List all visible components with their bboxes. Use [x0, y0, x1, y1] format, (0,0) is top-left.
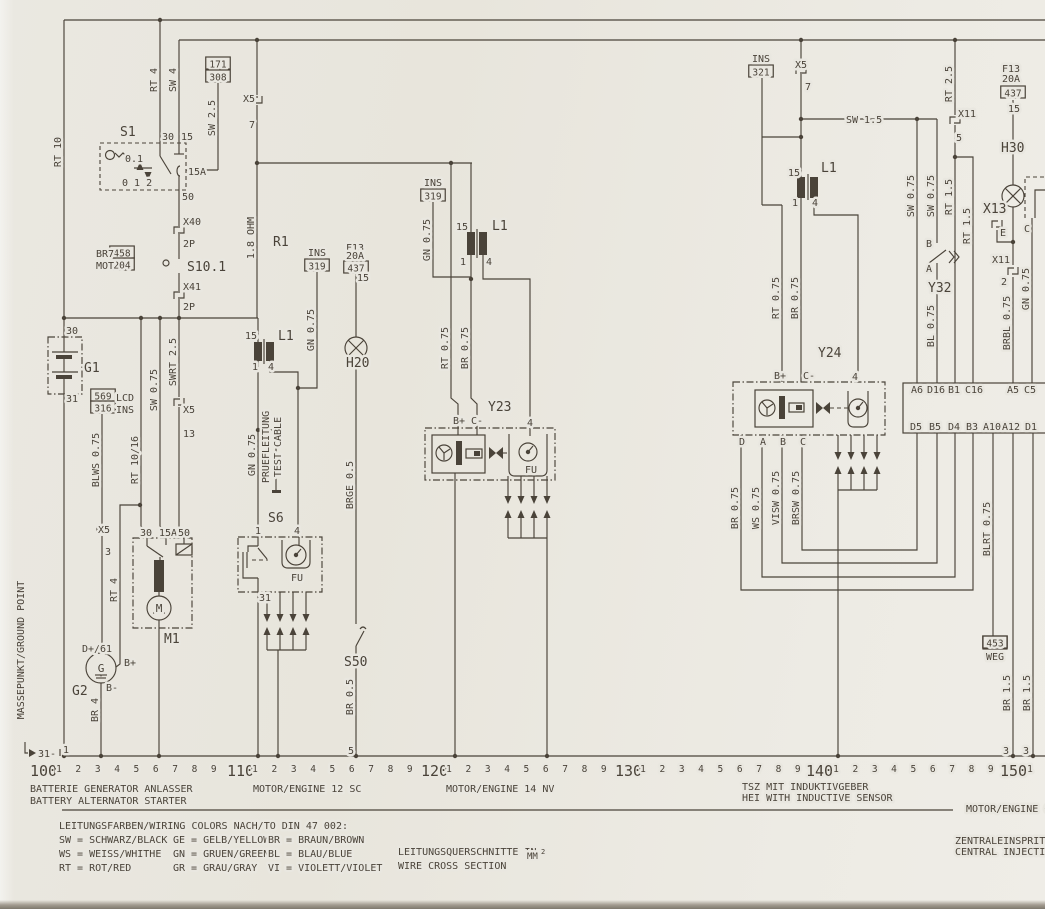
spark-arrow — [290, 614, 297, 622]
solid-bar — [56, 375, 72, 379]
rail-tick-number: 9 — [601, 764, 607, 775]
wire — [147, 546, 163, 557]
wire — [762, 402, 767, 408]
diagram-label: B+ — [453, 416, 465, 427]
rail-tick-number: 3 — [95, 764, 101, 775]
rail-tick-number: 9 — [211, 764, 217, 775]
diagram-label: 61 — [100, 644, 112, 655]
diagram-label: 4 — [486, 257, 492, 268]
diagram-label: 4 — [812, 198, 818, 209]
wire-label: WS 0.75 — [751, 487, 762, 529]
wire-label: SW 2.5 — [207, 100, 218, 136]
diagram-label: MOTOR/ENGINE 14 NV — [446, 784, 554, 795]
spark-arrow — [531, 496, 538, 504]
diagram-label: A6 — [911, 385, 923, 396]
diagram-label: C16 — [965, 385, 983, 396]
rail-tick-number: 5 — [718, 764, 724, 775]
rail-tick-number: 3 — [291, 764, 297, 775]
junction-dot — [953, 155, 957, 159]
rail-tick-number: 2 — [466, 764, 472, 775]
diagram-label: BR = BRAUN/BROWN — [268, 835, 364, 846]
wire-label: GN 0.75 — [247, 434, 258, 476]
diagram-label: 15A — [159, 528, 177, 539]
wire-label: SW 4 — [168, 68, 179, 92]
diagram-label: D16 — [927, 385, 945, 396]
wire-label: BR 0.75 — [460, 327, 471, 369]
diagram-label: MM — [527, 852, 538, 862]
diagram-label: D+/ — [82, 644, 100, 655]
diagram-label: X11 — [992, 255, 1010, 266]
diagram-label: GR = GRAU/GRAY — [173, 863, 257, 874]
wire-label: BLRT 0.75 — [982, 502, 993, 556]
rail-tick-number: 4 — [891, 764, 897, 775]
spark-arrow — [277, 614, 284, 622]
wire-label: RT 1.5 — [944, 179, 955, 215]
diagram-label: 15 — [1008, 104, 1020, 115]
diagram-label: 3 — [1003, 746, 1009, 757]
wire-label: BR 0.75 — [730, 487, 741, 529]
wire-label: BR 4 — [90, 698, 101, 722]
wire-label: BR 0.5 — [345, 679, 356, 715]
wire-label: RT 2.5 — [944, 66, 955, 102]
wire-label: RT 0.75 — [440, 327, 451, 369]
solid-bar — [474, 451, 480, 456]
diagram-label: LCD — [116, 393, 134, 404]
diagram-label: 4 — [294, 526, 300, 537]
diagram-label: X41 — [183, 282, 201, 293]
rail-tick-number: 2 — [660, 764, 666, 775]
junction-dot — [139, 316, 143, 320]
schematic-page: 171308458204569316319437319321437453RT 1… — [0, 0, 1045, 909]
diagram-label: 1 — [252, 362, 258, 373]
diagram-label: B+ — [124, 658, 136, 669]
spark-arrow — [861, 452, 868, 460]
spark-arrow — [874, 452, 881, 460]
diagram-label: 20A — [346, 251, 364, 262]
rail-tick-number: 9 — [407, 764, 413, 775]
junction-dot — [256, 754, 260, 758]
rail-tick-number: 6 — [349, 764, 355, 775]
wire — [439, 447, 444, 453]
diagram-label: 15A — [188, 167, 206, 178]
diagram-label: X5 — [98, 525, 110, 536]
wire-label: RT 10 — [53, 137, 64, 167]
rail-tick-number: 4 — [698, 764, 704, 775]
rail-tick-number: 1 — [833, 764, 839, 775]
spark-arrow — [835, 466, 842, 474]
wire — [955, 157, 973, 383]
diagram-label: CENTRAL INJECTIO — [955, 847, 1045, 858]
wire — [471, 279, 477, 428]
diagram-label: R1 — [273, 235, 289, 250]
diagram-label: 1 — [460, 257, 466, 268]
wire-label: SW 0.75 — [926, 175, 937, 217]
spark-arrow — [290, 627, 297, 635]
wire-label: BR 1.5 — [1002, 675, 1013, 711]
solid-bar — [456, 441, 462, 465]
diagram-label: 15 — [456, 222, 468, 233]
diagram-label: GE = GELB/YELLOW — [173, 835, 270, 846]
diagram-label: GN = GRUEN/GREEN — [173, 849, 269, 860]
diagram-label: 13 — [183, 429, 195, 440]
wire — [1035, 190, 1045, 218]
junction-dot — [836, 754, 840, 758]
diagram-label: INS — [424, 178, 442, 189]
wire-label: RT 10/16 — [130, 436, 141, 484]
spark-arrow — [835, 452, 842, 460]
scan-left-edge — [0, 0, 14, 909]
junction-dot — [799, 38, 803, 42]
rail-tick-number: 8 — [582, 764, 588, 775]
diagram-label: D4 — [948, 422, 960, 433]
rail-tick-number: 2 — [75, 764, 81, 775]
diagram-label: B1 — [948, 385, 960, 396]
diagram-label: WIRE CROSS SECTION — [398, 861, 506, 872]
diagram-label: D — [739, 437, 745, 448]
filled-symbol — [489, 447, 496, 459]
solid-bar — [779, 396, 785, 419]
diagram-label: 31- — [38, 749, 56, 760]
wire-label: 1.8 OHM — [246, 217, 257, 259]
diagram-label: 30 — [140, 528, 152, 539]
wire-label: SW 0.75 — [906, 175, 917, 217]
diagram-label: E — [1000, 228, 1006, 239]
diagram-label: 1 — [792, 198, 798, 209]
diagram-label: MOTOR/ENGINE C — [966, 804, 1045, 815]
diagram-label: 0 1 2 — [122, 178, 152, 189]
solid-bar — [254, 342, 262, 361]
diagram-label: 3 — [1023, 746, 1029, 757]
ref-box-label: 321 — [752, 68, 769, 79]
rail-tick-number: 6 — [737, 764, 743, 775]
diagram-label: 7 — [805, 82, 811, 93]
diagram-label: D1 — [1025, 422, 1037, 433]
wire — [949, 251, 954, 263]
filled-symbol — [823, 402, 830, 414]
junction-dot — [354, 754, 358, 758]
diagram-label: 30 — [162, 132, 174, 143]
diagram-label: C — [800, 437, 806, 448]
diagram-label: FU — [291, 573, 303, 584]
rail-tick-number: 3 — [679, 764, 685, 775]
solid-bar — [266, 342, 274, 361]
diagram-label: WS = WEISS/WHITHE — [59, 849, 161, 860]
rail-tick-number: 4 — [114, 764, 120, 775]
diagram-label: 15 — [357, 273, 369, 284]
wire — [802, 433, 917, 550]
rail-tick-number: 3 — [872, 764, 878, 775]
rail-section-number: 140 — [806, 762, 833, 780]
diagram-label: B3 — [966, 422, 978, 433]
component-enclosure-box — [48, 337, 82, 394]
wire-label: PRUEFLEITUNG — [261, 411, 272, 483]
diagram-label: A — [926, 264, 932, 275]
rail-tick-number: 6 — [153, 764, 159, 775]
ref-box-label: 204 — [113, 261, 130, 272]
filled-symbol — [29, 749, 36, 757]
diagram-label: L1 — [821, 161, 837, 176]
diagram-label: C — [1024, 224, 1030, 235]
diagram-label: WEG — [986, 652, 1004, 663]
junction-dot — [915, 117, 919, 121]
diagram-label: 15 — [245, 331, 257, 342]
ref-box-label: 453 — [986, 639, 1003, 650]
diagram-label: S10.1 — [187, 260, 226, 275]
wire — [160, 156, 171, 174]
wire — [258, 548, 267, 559]
wire-label: BRBL 0.75 — [1002, 296, 1013, 350]
wire-label: BR 0.75 — [790, 277, 801, 319]
diagram-label: 20A — [1002, 74, 1020, 85]
diagram-label: G — [98, 662, 105, 675]
wire — [356, 631, 364, 646]
rail-tick-number: 7 — [949, 764, 955, 775]
diagram-label: B- — [106, 683, 118, 694]
junction-dot — [158, 18, 162, 22]
wire — [929, 250, 946, 263]
diagram-label: 0.1 — [125, 154, 143, 165]
wire — [176, 544, 192, 555]
rail-section-number: 130 — [615, 762, 642, 780]
diagram-label: 2 — [1001, 277, 1007, 288]
rail-tick-number: 9 — [988, 764, 994, 775]
diagram-label: H20 — [346, 356, 369, 371]
spark-arrow — [518, 510, 525, 518]
spark-arrow — [861, 466, 868, 474]
diagram-label: BR7 — [96, 249, 114, 260]
diagram-label: BATTERIE GENERATOR ANLASSER — [30, 784, 194, 795]
wire-label: GN 0.75 — [306, 309, 317, 351]
wire — [782, 433, 937, 563]
wire-label: SWRT 2.5 — [168, 338, 179, 386]
junction-dot — [157, 754, 161, 758]
rail-tick-number: 8 — [388, 764, 394, 775]
wire — [451, 163, 458, 428]
junction-dot — [138, 503, 142, 507]
wire — [360, 627, 366, 629]
wire — [248, 546, 258, 552]
component-circle — [163, 260, 169, 266]
solid-bar — [796, 405, 802, 410]
wire-label: BL 0.75 — [926, 305, 937, 347]
diagram-label: 5 — [348, 746, 354, 757]
spark-arrow — [544, 510, 551, 518]
diagram-label: D5 — [910, 422, 922, 433]
diagram-label: FU — [525, 465, 537, 476]
rail-section-number: 110 — [227, 762, 254, 780]
diagram-label: X5 — [183, 405, 195, 416]
diagram-label: X11 — [958, 109, 976, 120]
diagram-label: 2P — [183, 302, 195, 313]
wire-label: TEST CABLE — [273, 417, 284, 477]
diagram-label: HEI WITH INDUCTIVE SENSOR — [742, 793, 893, 804]
junction-dot — [276, 754, 280, 758]
spark-arrow — [531, 510, 538, 518]
diagram-label: Y32 — [928, 281, 951, 296]
wire-label: GN 0.75 — [422, 219, 433, 261]
spark-arrow — [303, 614, 310, 622]
junction-dot — [953, 38, 957, 42]
diagram-label: X13 — [983, 202, 1006, 217]
diagram-label: 50 — [178, 528, 190, 539]
rail-tick-number: 8 — [776, 764, 782, 775]
diagram-label: ZENTRALEINSPRITZ — [955, 836, 1045, 847]
diagram-label: MOTOR/ENGINE 12 SC — [253, 784, 361, 795]
diagram-label: C- — [471, 416, 483, 427]
junction-dot — [1011, 754, 1015, 758]
diagram-label: 7 — [249, 120, 255, 131]
rail-tick-number: 1 — [446, 764, 452, 775]
wire — [177, 166, 180, 176]
spark-arrow — [505, 510, 512, 518]
diagram-label: M1 — [164, 632, 180, 647]
spark-arrow — [544, 496, 551, 504]
component-circle — [106, 151, 115, 160]
diagram-label: INS — [752, 54, 770, 65]
rail-tick-number: 6 — [543, 764, 549, 775]
spark-arrow — [264, 614, 271, 622]
diagram-label: A10 — [983, 422, 1001, 433]
diagram-label: M — [156, 602, 163, 615]
diagram-label: TSZ MIT INDUKTIVGEBER — [742, 782, 869, 793]
wiring-diagram: 171308458204569316319437319321437453RT 1… — [0, 0, 1045, 909]
diagram-label: B — [926, 239, 932, 250]
diagram-label: X5 — [795, 60, 807, 71]
diagram-label: A5 — [1007, 385, 1019, 396]
wire-label: BLWS 0.75 — [91, 433, 102, 487]
diagram-label: Y23 — [488, 400, 511, 415]
ref-box-label: 316 — [94, 404, 111, 415]
wire — [179, 407, 184, 538]
ref-box-label: 319 — [308, 262, 325, 273]
ref-box-label: 437 — [1004, 89, 1021, 100]
diagram-label: 15 — [181, 132, 193, 143]
rail-section-number: 150 — [1000, 762, 1027, 780]
diagram-label: 50 — [182, 192, 194, 203]
rail-tick-number: 4 — [504, 764, 510, 775]
spark-arrow — [277, 627, 284, 635]
solid-bar — [479, 232, 487, 255]
wire-label: BRGE 0.5 — [345, 461, 356, 509]
diagram-label: RT = ROT/RED — [59, 863, 131, 874]
diagram-label: INS — [116, 405, 134, 416]
spark-arrow — [874, 466, 881, 474]
diagram-label: VI = VIOLETT/VIOLET — [268, 863, 382, 874]
rail-tick-number: 7 — [756, 764, 762, 775]
diagram-label: S50 — [344, 655, 367, 670]
solid-bar — [272, 490, 281, 493]
diagram-label: 2P — [183, 239, 195, 250]
wire-label: BRSW 0.75 — [791, 471, 802, 525]
junction-dot — [856, 406, 860, 410]
solid-bar — [467, 232, 475, 255]
junction-dot — [62, 316, 66, 320]
junction-dot — [158, 316, 162, 320]
rail-tick-number: 1 — [640, 764, 646, 775]
diagram-label: 31 — [66, 394, 78, 405]
junction-dot — [255, 161, 259, 165]
diagram-label: X40 — [183, 217, 201, 228]
spark-arrow — [303, 627, 310, 635]
diagram-label: L1 — [492, 219, 508, 234]
wire-label: GN 0.75 — [1021, 268, 1032, 310]
diagram-label: X5 — [243, 94, 255, 105]
wire — [243, 568, 258, 578]
diagram-label: B+ — [774, 371, 786, 382]
wire — [767, 404, 773, 408]
rail-tick-number: 6 — [930, 764, 936, 775]
wire-label: BR 1.5 — [1022, 675, 1033, 711]
diagram-label: SW 1.5 — [846, 115, 882, 126]
rail-section-number: 120 — [421, 762, 448, 780]
rail-tick-number: 2 — [272, 764, 278, 775]
rail-tick-number: 2 — [853, 764, 859, 775]
diagram-label: G1 — [84, 361, 100, 376]
diagram-label: MOT — [96, 261, 114, 272]
diagram-label: 1 — [255, 526, 261, 537]
diagram-label: B — [780, 437, 786, 448]
spark-arrow — [848, 466, 855, 474]
diagram-label: BATTERY ALTERNATOR STARTER — [30, 796, 188, 807]
rail-tick-number: 4 — [310, 764, 316, 775]
junction-dot — [294, 553, 298, 557]
junction-dot — [255, 38, 259, 42]
wire-label: RT 4 — [109, 578, 120, 602]
diagram-label: Y24 — [818, 346, 842, 361]
rail-tick-number: 1 — [56, 764, 62, 775]
rail-tick-number: 5 — [524, 764, 530, 775]
diagram-label: 30 — [66, 326, 78, 337]
wire-label: SW 0.75 — [149, 369, 160, 411]
diagram-label: 15 — [788, 168, 800, 179]
wire — [25, 742, 28, 753]
rail-section-number: 100 — [30, 762, 57, 780]
diagram-label: B5 — [929, 422, 941, 433]
ref-box-label: 171 — [209, 60, 226, 71]
diagram-label: 3 — [105, 547, 111, 558]
rail-tick-number: 3 — [485, 764, 491, 775]
solid-bar — [56, 355, 72, 359]
diagram-label: C- — [803, 371, 815, 382]
diagram-label: 4 — [268, 362, 274, 373]
wire — [160, 318, 166, 538]
rail-tick-number: 9 — [795, 764, 801, 775]
diagram-label: G2 — [72, 684, 88, 699]
spark-arrow — [505, 496, 512, 504]
diagram-label: L1 — [278, 329, 294, 344]
filled-symbol — [496, 447, 503, 459]
junction-dot — [526, 450, 530, 454]
junction-dot — [799, 117, 803, 121]
diagram-label: INS — [308, 248, 326, 259]
diagram-label: SW = SCHWARZ/BLACK — [59, 835, 167, 846]
diagram-label: 4 — [852, 372, 858, 383]
filled-symbol — [816, 402, 823, 414]
solid-bar — [797, 177, 805, 198]
scan-edge-artifact — [0, 900, 1045, 909]
junction-dot — [1031, 754, 1035, 758]
junction-dot — [545, 754, 549, 758]
solid-bar — [810, 177, 818, 198]
junction-dot — [469, 277, 473, 281]
wire-label: RT 4 — [149, 68, 160, 92]
junction-dot — [296, 386, 300, 390]
junction-dot — [453, 754, 457, 758]
diagram-label: 2 — [541, 848, 545, 856]
junction-dot — [256, 428, 260, 432]
diagram-label: C5 — [1024, 385, 1036, 396]
diagram-label: S6 — [268, 511, 284, 526]
